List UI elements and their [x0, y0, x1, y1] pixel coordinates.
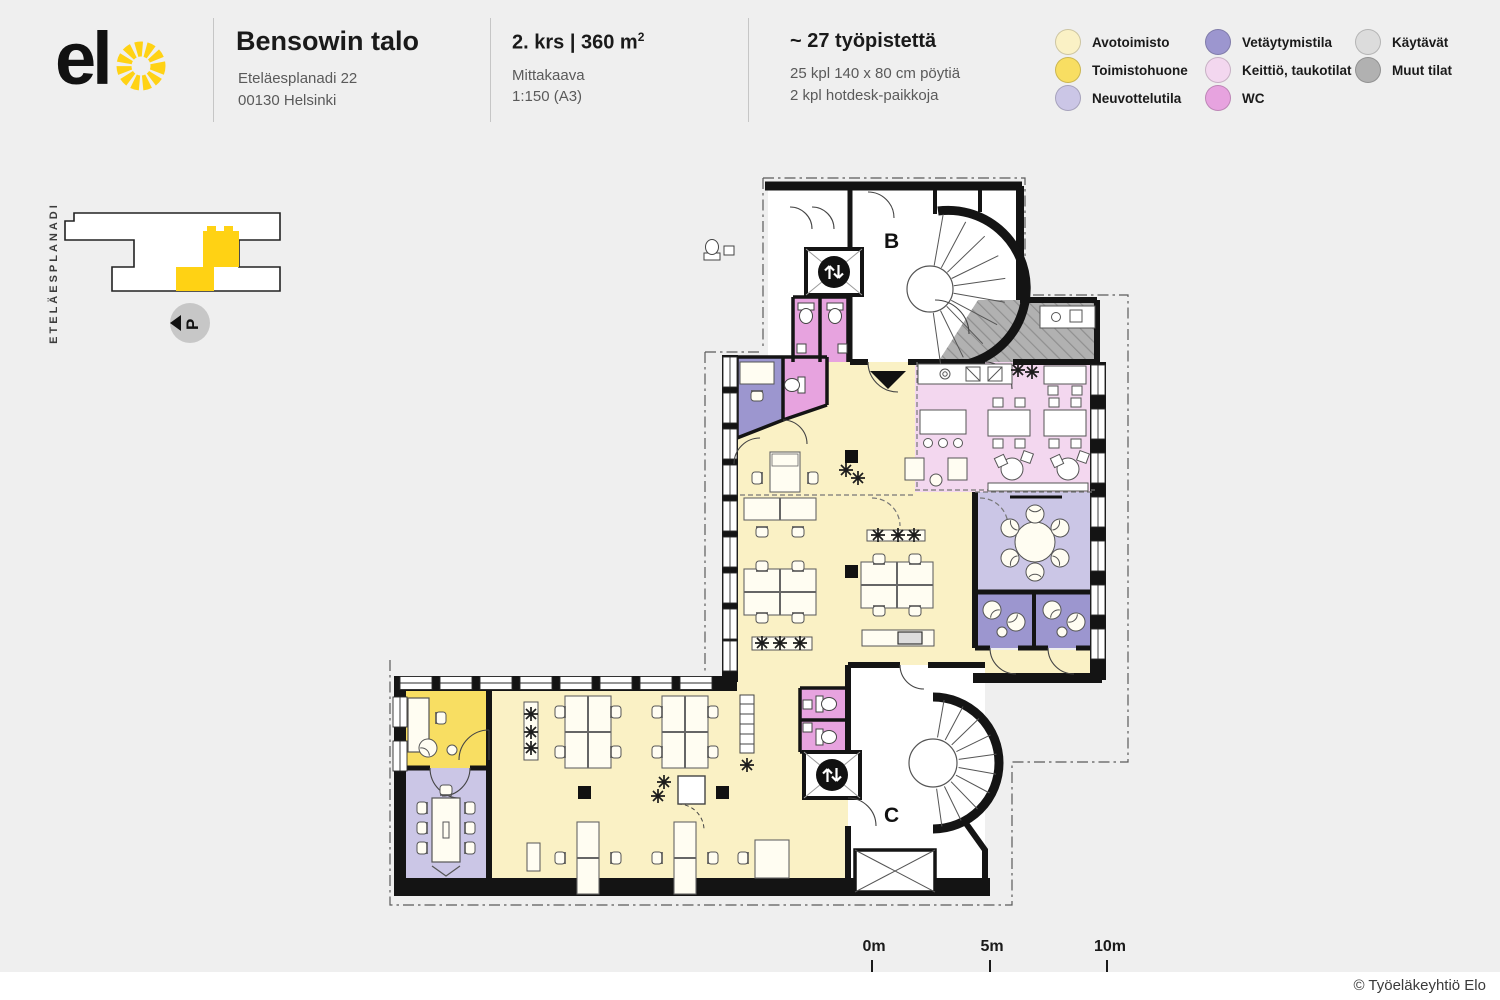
legend-swatch — [1205, 85, 1231, 111]
legend-item-muut-tilat: Muut tilat — [1355, 56, 1452, 84]
legend-swatch — [1355, 57, 1381, 83]
legend-item-neuvottelutila: Neuvottelutila — [1055, 84, 1188, 112]
floor-title: 2. krs | 360 m2 — [512, 30, 644, 55]
elo-logo: el — [55, 22, 171, 96]
footer-bar — [0, 972, 1500, 1000]
legend-swatch — [1055, 57, 1081, 83]
scale-label: Mittakaava — [512, 65, 644, 87]
legend-item-avotoimisto: Avotoimisto — [1055, 28, 1188, 56]
elo-sunburst-icon — [111, 36, 171, 96]
address-line-1: Eteläesplanadi 22 — [238, 68, 357, 90]
legend-item-kaytavat: Käytävät — [1355, 28, 1452, 56]
header-divider-3 — [748, 18, 749, 122]
legend-item-wc: WC — [1205, 84, 1352, 112]
elo-logo-text: el — [55, 22, 109, 96]
site-map-building-outline — [65, 213, 280, 291]
north-compass: P — [170, 303, 210, 343]
legend-swatch — [1055, 29, 1081, 55]
scale-0m: 0m — [862, 938, 885, 956]
workstations-line-2: 2 kpl hotdesk-paikkoja — [790, 85, 960, 107]
shaft — [855, 850, 935, 892]
floor-info: 2. krs | 360 m2 Mittakaava 1:150 (A3) — [512, 30, 644, 108]
legend-item-keittio: Keittiö, taukotilat — [1205, 56, 1352, 84]
scale-info: Mittakaava 1:150 (A3) — [512, 65, 644, 109]
legend-swatch — [1205, 57, 1231, 83]
legend-swatch — [1205, 29, 1231, 55]
copyright: © Työeläkeyhtiö Elo — [1353, 977, 1486, 994]
header-divider-1 — [213, 18, 214, 122]
workstations-details: 25 kpl 140 x 80 cm pöytiä 2 kpl hotdesk-… — [790, 63, 960, 107]
elevator-c-icon — [804, 752, 860, 798]
legend-item-vetaytymistila: Vetäytymistila — [1205, 28, 1352, 56]
stair-b-label: B — [884, 230, 899, 253]
stair-c-label: C — [884, 804, 899, 827]
elevator-b-icon — [806, 249, 862, 295]
scale-10m: 10m — [1094, 938, 1126, 956]
building-address: Eteläesplanadi 22 00130 Helsinki — [238, 68, 357, 112]
page: el Bensowin talo Eteläesplanadi 22 00130… — [0, 0, 1500, 1000]
legend-item-toimistohuone: Toimistohuone — [1055, 56, 1188, 84]
room-retreat-2 — [1036, 592, 1095, 648]
legend-swatch — [1355, 29, 1381, 55]
compass-letter: P — [183, 319, 202, 330]
site-map: P — [40, 195, 340, 370]
scale-value: 1:150 (A3) — [512, 86, 644, 108]
workstations-line-1: 25 kpl 140 x 80 cm pöytiä — [790, 63, 960, 85]
legend-swatch — [1055, 85, 1081, 111]
workstations-title: ~ 27 työpistettä — [790, 30, 960, 53]
building-title: Bensowin talo — [236, 26, 419, 57]
header-divider-2 — [490, 18, 491, 122]
floor-plan: B C — [380, 170, 1300, 940]
address-line-2: 00130 Helsinki — [238, 90, 357, 112]
scale-5m: 5m — [980, 938, 1003, 956]
workstation-info: ~ 27 työpistettä 25 kpl 140 x 80 cm pöyt… — [790, 30, 960, 107]
